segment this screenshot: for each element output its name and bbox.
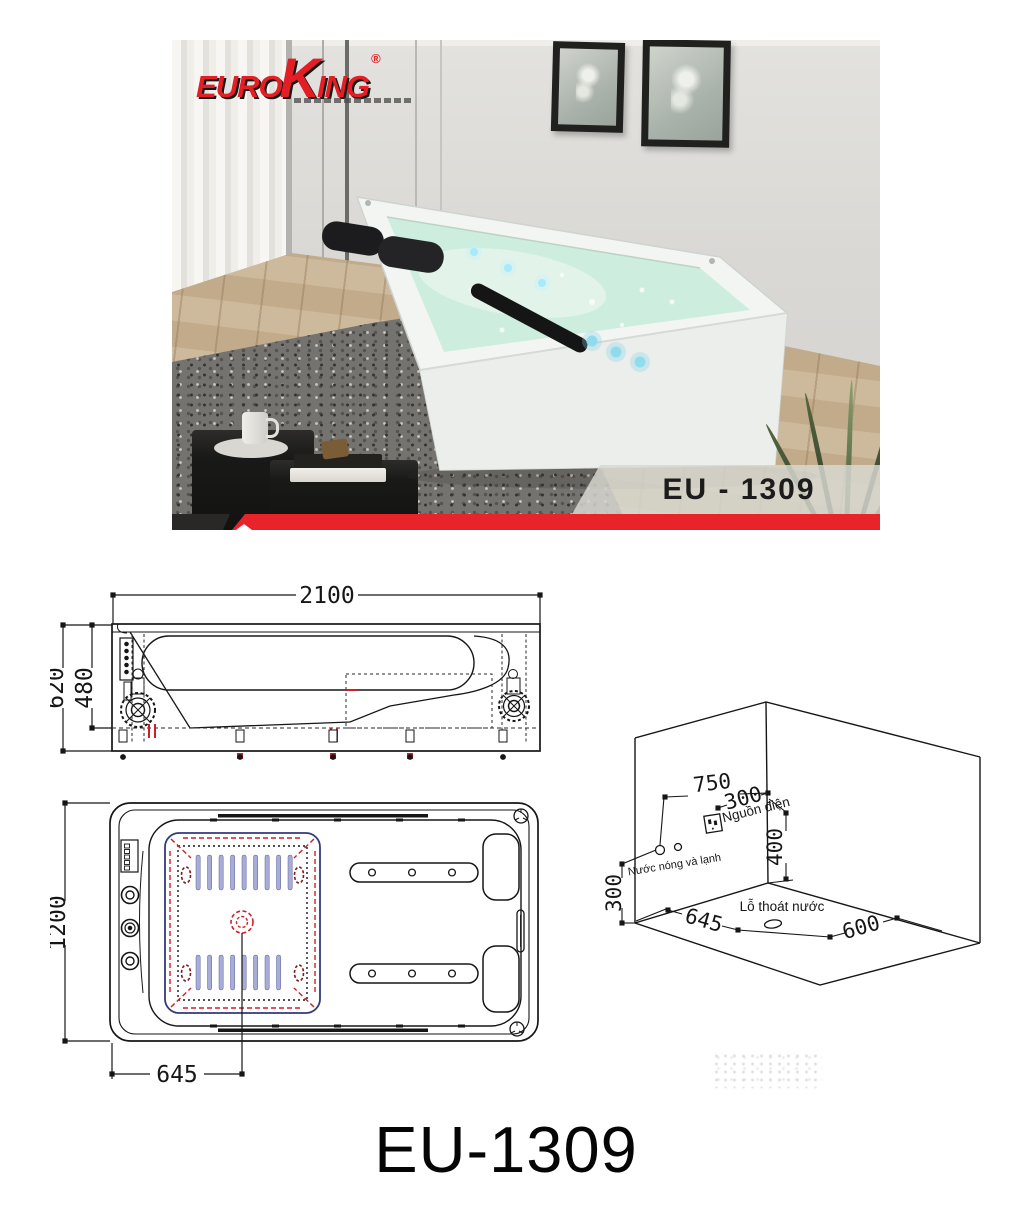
deck-fitting [709,258,715,264]
model-title: EU-1309 [0,1112,1012,1187]
model-badge-text: EU - 1309 [602,473,815,507]
registered-trademark-icon: ® [371,52,381,65]
product-photo: EURO K ING ® EU - 1309 [172,40,880,530]
dim-label-645-floor: 645 [682,904,725,938]
top-tub-outline [110,803,538,1041]
dim-label-1200: 1200 [50,895,71,950]
floor-slats [196,855,292,990]
side-tub-outline [112,624,540,751]
dim-label-400: 400 [763,828,787,866]
dim-label-480: 480 [72,667,98,709]
ribbon-notch [236,524,252,530]
dim-label-620: 620 [50,667,69,709]
side-view-drawing: 2100 620 480 [50,578,560,778]
drain-hole-icon [764,919,782,929]
red-ribbon [172,514,880,530]
side-control-dots [125,642,129,674]
drain-symbol [231,911,253,1074]
top-view-drawing: 1200 645 [50,783,560,1088]
logo-text-euro: EURO [196,71,282,102]
pump-symbol-right [499,691,529,721]
dim-label-600-floor: 600 [840,911,883,945]
power-outlet-icon [704,814,722,833]
ribbon-red-segment [232,514,880,530]
dim-label-2100: 2100 [299,583,354,609]
installation-drawing: 750 300 400 300 645 600 Nguồn điện Nước … [600,680,1000,992]
dim-label-300-left: 300 [602,874,626,912]
dim-label-645: 645 [156,1062,198,1088]
faint-watermark [712,1052,822,1088]
bathtub-illustration [172,40,880,530]
room-corner [635,702,980,985]
pump-symbol-left [121,693,155,727]
product-sheet: EURO K ING ® EU - 1309 [0,0,1012,1212]
top-dimensions [63,801,244,1079]
label-drain-hole: Lỗ thoát nước [740,899,825,914]
ribbon-dark-segment [172,514,230,530]
water-supply-icon [656,844,682,855]
side-hidden-lines [112,634,540,742]
top-black-bars [125,814,466,1032]
deck-fitting [365,200,371,206]
side-feet [119,730,507,759]
logo-tagline [294,98,412,103]
